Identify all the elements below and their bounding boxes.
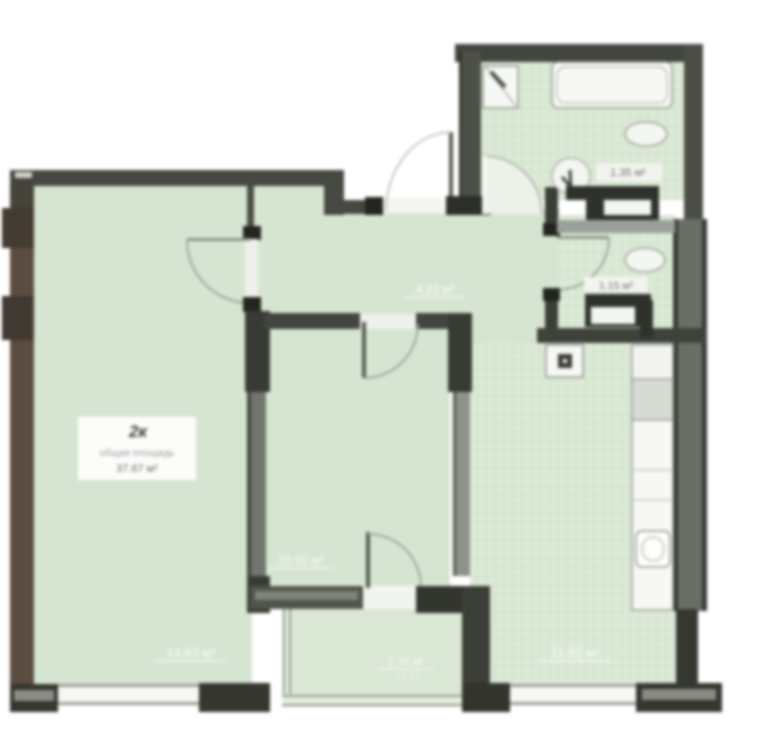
- svg-text:4.23 м²: 4.23 м²: [416, 282, 455, 296]
- svg-text:14.63 м²: 14.63 м²: [166, 645, 216, 660]
- svg-text:10.92 м²: 10.92 м²: [278, 553, 324, 567]
- svg-text:11.82 м²: 11.82 м²: [551, 645, 600, 660]
- svg-text:2.16 м²: 2.16 м²: [388, 656, 424, 668]
- svg-text:+1.17: +1.17: [395, 672, 421, 683]
- svg-text:общая площадь: общая площадь: [99, 447, 174, 459]
- svg-text:2к: 2к: [128, 422, 148, 441]
- svg-text:37.67 м²: 37.67 м²: [116, 463, 158, 475]
- svg-text:1.35 м²: 1.35 м²: [610, 167, 646, 179]
- svg-text:1.15 м²: 1.15 м²: [599, 280, 634, 292]
